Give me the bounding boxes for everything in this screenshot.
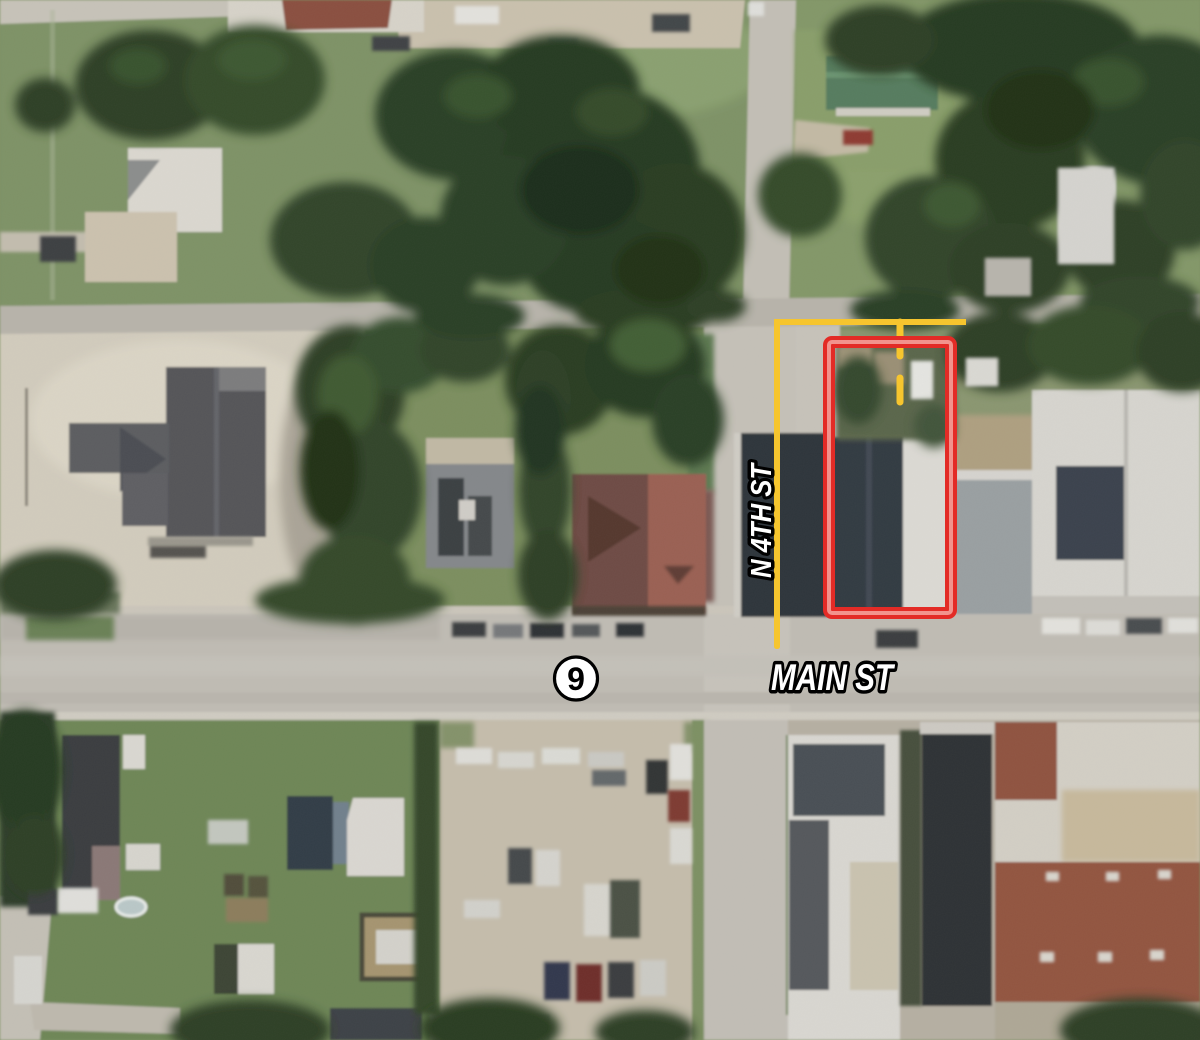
svg-text:N 4TH ST: N 4TH ST [746, 462, 778, 578]
svg-text:9: 9 [567, 661, 585, 697]
svg-text:MAIN ST: MAIN ST [771, 657, 896, 698]
